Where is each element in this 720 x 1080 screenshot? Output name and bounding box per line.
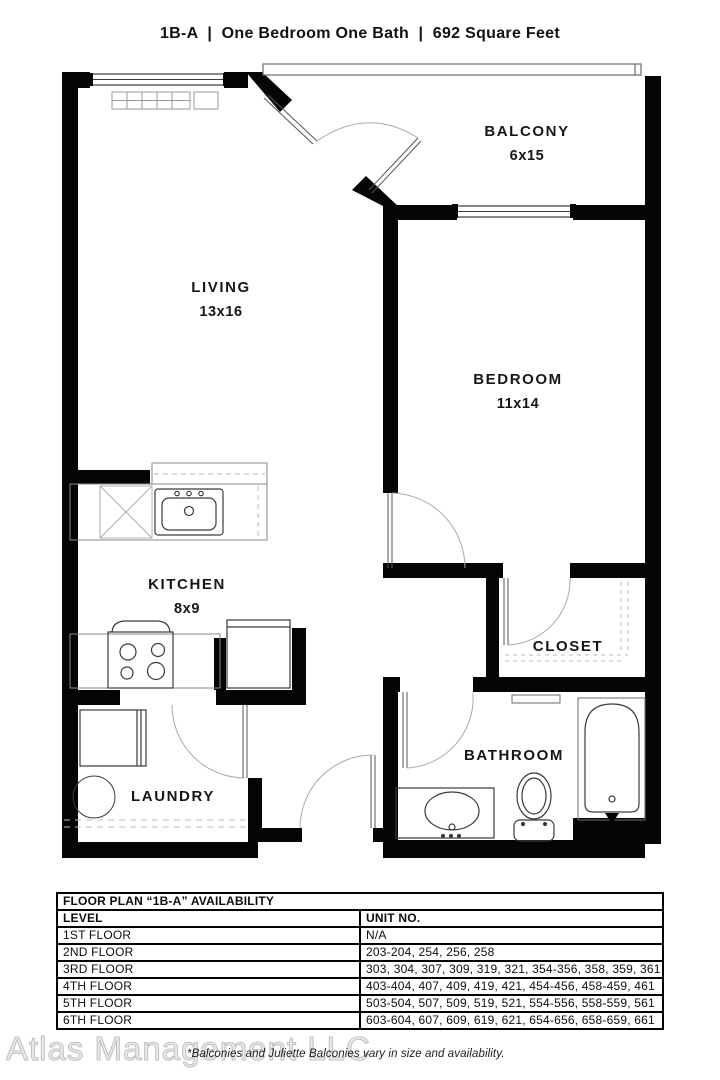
units-cell: N/A [360, 927, 663, 944]
label-kitchen: KITCHEN [148, 576, 226, 593]
level-cell: 4TH FLOOR [57, 978, 360, 995]
washer-dryer [80, 710, 146, 766]
balcony-rail [263, 64, 641, 75]
units-cell: 603-604, 607, 609, 619, 621, 654-656, 65… [360, 1012, 663, 1029]
level-cell: 6TH FLOOR [57, 1012, 360, 1029]
table-row: 3RD FLOOR 303, 304, 307, 309, 319, 321, … [57, 961, 663, 978]
table-row: 4TH FLOOR 403-404, 407, 409, 419, 421, 4… [57, 978, 663, 995]
units-cell: 203-204, 254, 256, 258 [360, 944, 663, 961]
refrigerator [227, 620, 290, 688]
label-closet: CLOSET [533, 638, 603, 655]
level-cell: 2ND FLOOR [57, 944, 360, 961]
bathtub [578, 698, 645, 824]
laundry-door [172, 705, 247, 778]
column-header-units: UNIT NO. [360, 910, 663, 927]
table-row: 1ST FLOOR N/A [57, 927, 663, 944]
toilet [514, 773, 554, 841]
label-balcony: BALCONY [484, 123, 569, 140]
balcony-door [264, 95, 421, 193]
label-bathroom: BATHROOM [464, 747, 564, 764]
units-cell: 403-404, 407, 409, 419, 421, 454-456, 45… [360, 978, 663, 995]
level-cell: 1ST FLOOR [57, 927, 360, 944]
level-cell: 5TH FLOOR [57, 995, 360, 1012]
balcony-footnote: *Balconies and Juliette Balconies vary i… [187, 1048, 505, 1060]
dims-bedroom: 11x14 [497, 396, 540, 412]
dims-balcony: 6x15 [510, 148, 545, 164]
label-laundry: LAUNDRY [131, 788, 215, 805]
laundry-basin [73, 776, 115, 818]
dims-kitchen: 8x9 [174, 601, 200, 617]
availability-title-row: FLOOR PLAN “1B-A” AVAILABILITY [57, 893, 663, 910]
bathroom-door [403, 692, 473, 768]
units-cell: 303, 304, 307, 309, 319, 321, 354-356, 3… [360, 961, 663, 978]
column-header-level: LEVEL [57, 910, 360, 927]
towel-bar [512, 695, 560, 703]
stove [70, 621, 220, 688]
availability-table: FLOOR PLAN “1B-A” AVAILABILITY LEVEL UNI… [56, 892, 664, 1030]
label-bedroom: BEDROOM [473, 371, 563, 388]
availability-header-row: LEVEL UNIT NO. [57, 910, 663, 927]
availability-title: FLOOR PLAN “1B-A” AVAILABILITY [57, 893, 663, 910]
entry-door [300, 755, 375, 828]
bedroom-door [388, 493, 465, 568]
dishwasher [100, 486, 152, 538]
table-row: 2ND FLOOR 203-204, 254, 256, 258 [57, 944, 663, 961]
bathroom-vanity [396, 788, 494, 838]
living-window [88, 73, 228, 86]
laundry-shelf-dashed [64, 820, 246, 827]
units-cell: 503-504, 507, 509, 519, 521, 554-556, 55… [360, 995, 663, 1012]
table-row: 5TH FLOOR 503-504, 507, 509, 519, 521, 5… [57, 995, 663, 1012]
baseboard-heater [112, 92, 218, 109]
label-living: LIVING [191, 279, 251, 296]
closet-door [504, 578, 570, 645]
dims-living: 13x16 [199, 304, 242, 320]
table-row: 6TH FLOOR 603-604, 607, 609, 619, 621, 6… [57, 1012, 663, 1029]
bedroom-window [452, 204, 576, 218]
level-cell: 3RD FLOOR [57, 961, 360, 978]
kitchen-sink [155, 489, 223, 535]
